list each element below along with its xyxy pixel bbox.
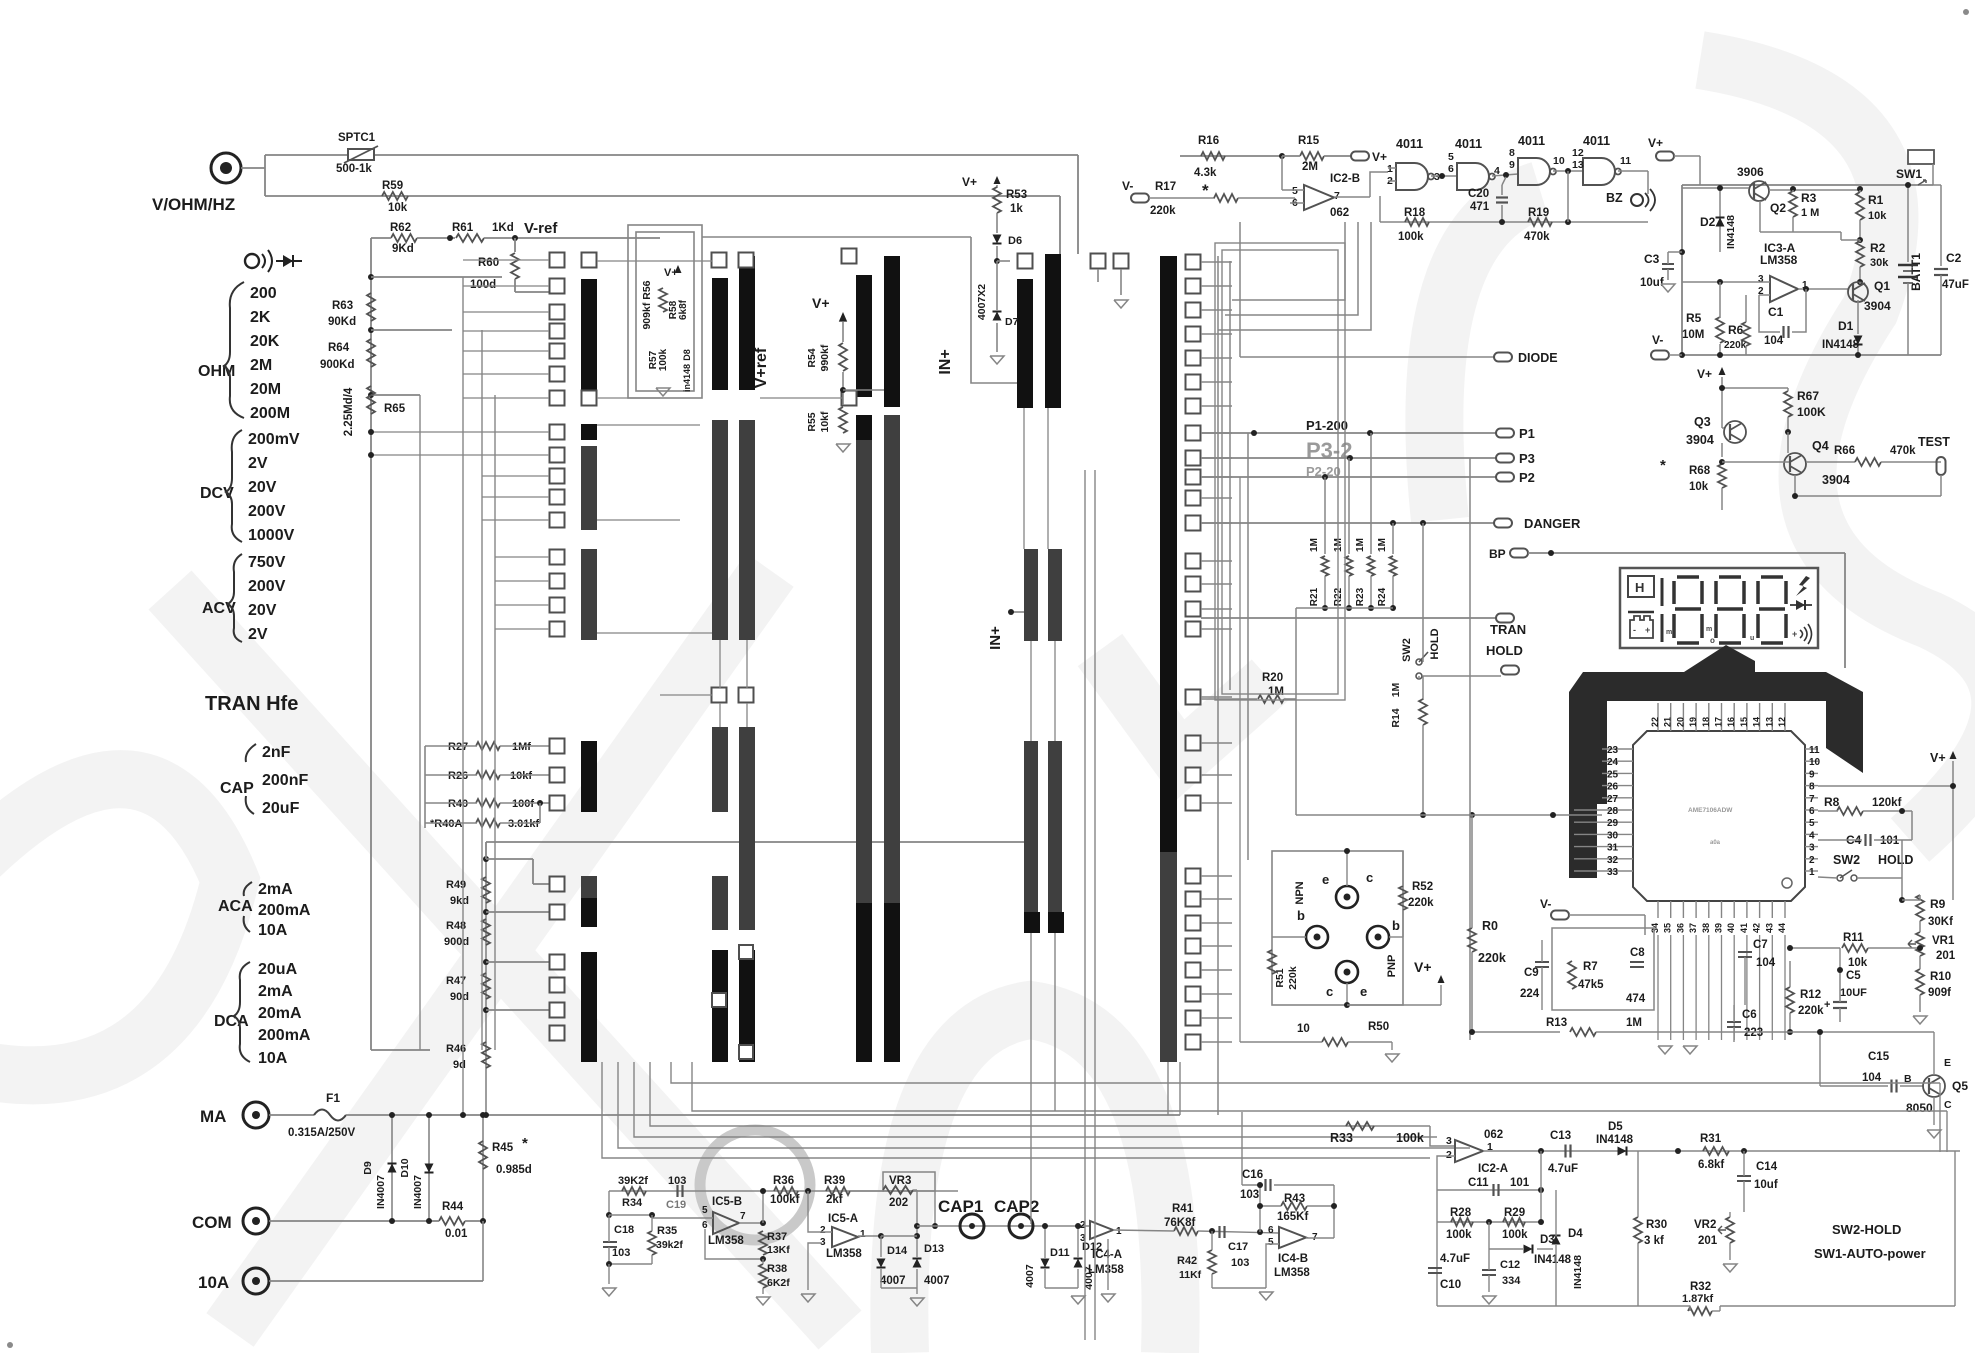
svg-text:b: b [1297, 908, 1305, 923]
svg-text:2mA: 2mA [258, 881, 293, 898]
svg-text:201: 201 [1936, 950, 1956, 962]
svg-text:30: 30 [1607, 830, 1619, 841]
svg-text:2: 2 [820, 1225, 826, 1236]
svg-text:V+: V+ [1414, 959, 1432, 975]
svg-text:R45: R45 [492, 1142, 514, 1154]
svg-text:100k: 100k [1502, 1229, 1528, 1241]
svg-text:R41: R41 [1172, 1203, 1194, 1215]
svg-text:D6: D6 [1008, 235, 1022, 247]
svg-text:D8: D8 [682, 349, 692, 361]
svg-text:6: 6 [1809, 806, 1815, 817]
svg-text:R59: R59 [382, 180, 403, 192]
svg-text:20V: 20V [248, 479, 277, 496]
svg-text:10kf: 10kf [819, 411, 831, 433]
svg-text:103: 103 [1231, 1257, 1249, 1269]
svg-text:20K: 20K [250, 333, 280, 350]
svg-text:IN4148: IN4148 [1725, 215, 1737, 249]
svg-text:R66: R66 [1834, 445, 1855, 457]
svg-text:20uF: 20uF [262, 800, 300, 817]
svg-text:LM358: LM358 [1274, 1267, 1310, 1279]
svg-text:6K2f: 6K2f [767, 1277, 790, 1289]
svg-text:IN4007: IN4007 [412, 1175, 424, 1209]
svg-text:V-: V- [1122, 179, 1133, 193]
svg-text:11: 11 [1620, 155, 1631, 167]
svg-text:7: 7 [740, 1211, 746, 1222]
svg-text:R31: R31 [1700, 1133, 1722, 1145]
svg-text:4011: 4011 [1455, 137, 1482, 151]
svg-text:C17: C17 [1228, 1241, 1248, 1253]
svg-text:23: 23 [1607, 745, 1619, 756]
svg-text:ACA: ACA [218, 898, 253, 915]
svg-text:R13: R13 [1546, 1017, 1567, 1029]
svg-text:VR3: VR3 [889, 1175, 911, 1187]
svg-text:R17: R17 [1155, 181, 1176, 193]
svg-text:*: * [1660, 457, 1666, 474]
svg-text:2K: 2K [250, 309, 271, 326]
svg-text:VR1: VR1 [1932, 935, 1955, 947]
svg-text:500-1k: 500-1k [336, 163, 372, 175]
svg-text:R24: R24 [1377, 587, 1388, 606]
svg-text:R11: R11 [1843, 932, 1864, 944]
svg-text:42: 42 [1752, 923, 1762, 933]
svg-text:90d: 90d [450, 991, 469, 1003]
svg-text:6: 6 [1268, 1225, 1274, 1236]
svg-text:38: 38 [1701, 923, 1711, 933]
svg-text:+: + [1824, 999, 1830, 1011]
svg-text:m: m [1706, 626, 1712, 633]
svg-text:R30: R30 [1646, 1219, 1667, 1231]
svg-text:200V: 200V [248, 503, 286, 520]
svg-text:V-: V- [1652, 333, 1663, 347]
svg-text:76K8f: 76K8f [1164, 1217, 1195, 1229]
svg-text:*: * [1202, 181, 1209, 200]
svg-text:R55: R55 [806, 412, 818, 431]
svg-text:17: 17 [1714, 717, 1724, 727]
svg-text:b: b [1392, 918, 1400, 933]
svg-text:SW2: SW2 [1401, 638, 1413, 662]
svg-text:m: m [1666, 629, 1672, 636]
svg-text:IN4148: IN4148 [1596, 1134, 1634, 1146]
svg-text:DIODE: DIODE [1518, 351, 1558, 365]
svg-text:IN+: IN+ [937, 349, 954, 374]
svg-text:43: 43 [1764, 923, 1774, 933]
svg-text:10UF: 10UF [1840, 987, 1867, 999]
svg-text:e: e [1360, 984, 1367, 999]
svg-text:c: c [1366, 870, 1373, 885]
svg-text:C3: C3 [1644, 252, 1660, 266]
svg-text:R36: R36 [773, 1175, 794, 1187]
svg-text:R23: R23 [1355, 587, 1366, 606]
svg-text:Q3: Q3 [1694, 415, 1711, 429]
svg-text:Q4: Q4 [1812, 439, 1829, 453]
svg-text:104: 104 [1764, 335, 1784, 347]
svg-text:in4148: in4148 [682, 364, 692, 392]
svg-text:TRAN: TRAN [1490, 622, 1526, 637]
svg-text:30k: 30k [1870, 257, 1889, 269]
svg-text:0.985d: 0.985d [496, 1164, 532, 1176]
svg-text:V-ref: V-ref [524, 220, 558, 237]
svg-text:c: c [1326, 984, 1333, 999]
svg-text:21: 21 [1663, 717, 1673, 727]
svg-text:9: 9 [1509, 159, 1515, 171]
svg-text:SW2-HOLD: SW2-HOLD [1832, 1222, 1901, 1237]
svg-text:3906: 3906 [1737, 165, 1764, 179]
svg-text:25: 25 [1607, 769, 1619, 780]
svg-text:u: u [1750, 635, 1754, 642]
svg-text:1M: 1M [1355, 538, 1366, 552]
svg-text:NPN: NPN [1294, 881, 1306, 904]
svg-text:C2: C2 [1946, 251, 1962, 265]
svg-text:6.8kf: 6.8kf [1698, 1159, 1724, 1171]
svg-text:R64: R64 [328, 342, 350, 354]
svg-text:D13: D13 [924, 1243, 944, 1255]
svg-text:H: H [1635, 580, 1644, 595]
svg-text:9d: 9d [453, 1059, 466, 1071]
svg-text:220k: 220k [1150, 205, 1176, 217]
svg-text:10A: 10A [258, 1050, 288, 1067]
svg-text:-: - [1633, 625, 1636, 635]
svg-text:990kf: 990kf [819, 344, 831, 371]
svg-text:C9: C9 [1524, 967, 1539, 979]
svg-text:R63: R63 [332, 300, 353, 312]
svg-text:200mA: 200mA [258, 902, 311, 919]
svg-text:100K: 100K [1797, 405, 1826, 419]
svg-text:2: 2 [1809, 855, 1815, 866]
svg-text:R44: R44 [442, 1201, 464, 1213]
svg-text:3: 3 [1758, 274, 1764, 285]
svg-text:16: 16 [1726, 717, 1736, 727]
svg-text:CAP2: CAP2 [994, 1197, 1039, 1216]
svg-text:18: 18 [1701, 717, 1711, 727]
svg-text:3: 3 [1809, 843, 1815, 854]
svg-text:HOLD: HOLD [1486, 643, 1523, 658]
svg-text:a0a: a0a [1710, 840, 1721, 846]
svg-text:C15: C15 [1868, 1051, 1890, 1063]
svg-text:IC2-B: IC2-B [1330, 173, 1360, 185]
svg-text:2: 2 [1446, 1149, 1452, 1161]
svg-text:900Kd: 900Kd [320, 359, 355, 371]
svg-text:1: 1 [1809, 867, 1815, 878]
svg-text:100k: 100k [1398, 231, 1424, 243]
svg-text:C11: C11 [1468, 1177, 1489, 1189]
svg-text:220k: 220k [1478, 951, 1506, 965]
svg-text:D9: D9 [362, 1161, 374, 1175]
svg-text:3: 3 [1446, 1135, 1452, 1147]
svg-text:P3: P3 [1519, 451, 1535, 466]
svg-text:3904: 3904 [1686, 433, 1714, 447]
svg-text:MA: MA [200, 1107, 226, 1126]
svg-text:R68: R68 [1689, 465, 1711, 477]
svg-text:220k: 220k [1724, 340, 1747, 351]
svg-text:o: o [1710, 636, 1715, 645]
svg-text:2nF: 2nF [262, 744, 291, 761]
svg-text:R29: R29 [1504, 1207, 1525, 1219]
svg-text:R8: R8 [1824, 795, 1840, 809]
svg-text:LM358: LM358 [1760, 253, 1798, 267]
svg-text:C1: C1 [1768, 305, 1784, 319]
svg-text:SW2: SW2 [1833, 853, 1860, 867]
svg-text:22: 22 [1650, 717, 1660, 727]
svg-text:41: 41 [1739, 923, 1749, 933]
svg-text:3: 3 [1434, 171, 1440, 183]
svg-text:220k: 220k [1287, 966, 1299, 990]
svg-text:39K2f: 39K2f [618, 1175, 648, 1187]
svg-text:11Kf: 11Kf [1179, 1269, 1202, 1281]
svg-text:39k2f: 39k2f [656, 1239, 683, 1251]
svg-text:10: 10 [1553, 155, 1565, 167]
svg-text:12: 12 [1572, 147, 1584, 159]
svg-text:223: 223 [1744, 1027, 1763, 1039]
svg-text:9kd: 9kd [450, 895, 469, 907]
svg-text:36: 36 [1675, 923, 1685, 933]
svg-text:R15: R15 [1298, 135, 1320, 147]
svg-text:C20: C20 [1468, 188, 1489, 200]
svg-text:5: 5 [1448, 151, 1454, 163]
svg-text:R52: R52 [1412, 881, 1433, 893]
svg-text:4007: 4007 [924, 1275, 950, 1287]
svg-text:10k: 10k [388, 202, 408, 214]
svg-text:10A: 10A [198, 1273, 229, 1292]
svg-text:P1: P1 [1519, 426, 1535, 441]
svg-text:29: 29 [1607, 818, 1619, 829]
svg-text:103: 103 [1240, 1189, 1259, 1201]
svg-text:33: 33 [1607, 867, 1619, 878]
svg-text:100k: 100k [1396, 1131, 1424, 1145]
svg-text:HOLD: HOLD [1429, 628, 1441, 659]
svg-text:R35: R35 [657, 1225, 677, 1237]
svg-text:R1: R1 [1868, 193, 1884, 207]
svg-text:1M: 1M [1390, 682, 1402, 697]
svg-text:10k: 10k [1848, 957, 1868, 969]
svg-text:R3: R3 [1801, 191, 1817, 205]
svg-text:103: 103 [612, 1247, 630, 1259]
svg-text:20V: 20V [248, 602, 277, 619]
svg-text:5: 5 [1809, 818, 1815, 829]
svg-text:200V: 200V [248, 578, 286, 595]
svg-text:V+: V+ [1372, 150, 1387, 164]
svg-text:1: 1 [1116, 1226, 1122, 1237]
svg-text:R2: R2 [1870, 241, 1886, 255]
svg-text:IC4-B: IC4-B [1278, 1253, 1308, 1265]
svg-text:P2: P2 [1519, 470, 1535, 485]
svg-text:470k: 470k [1524, 231, 1550, 243]
svg-text:20uA: 20uA [258, 961, 298, 978]
svg-text:104: 104 [1862, 1072, 1882, 1084]
svg-text:LM358: LM358 [708, 1235, 744, 1247]
svg-text:35: 35 [1663, 923, 1673, 933]
svg-text:C10: C10 [1440, 1279, 1461, 1291]
svg-text:C: C [1944, 1099, 1952, 1111]
svg-text:27: 27 [1607, 794, 1619, 805]
svg-text:24: 24 [1607, 757, 1619, 768]
svg-text:R60: R60 [478, 257, 499, 269]
svg-text:Q2: Q2 [1770, 201, 1786, 215]
svg-text:202: 202 [889, 1197, 908, 1209]
svg-text:R9: R9 [1930, 897, 1946, 911]
svg-text:4011: 4011 [1396, 137, 1423, 151]
svg-text:8050: 8050 [1906, 1101, 1933, 1115]
svg-text:D10: D10 [399, 1158, 411, 1177]
svg-text:D14: D14 [887, 1245, 908, 1257]
svg-text:SW1-AUTO-power: SW1-AUTO-power [1814, 1246, 1926, 1261]
svg-text:IN4148: IN4148 [1534, 1254, 1572, 1266]
svg-text:D11: D11 [1050, 1247, 1070, 1259]
svg-text:R14: R14 [1390, 708, 1402, 727]
svg-text:*R40A: *R40A [430, 818, 462, 830]
svg-text:R39: R39 [824, 1175, 845, 1187]
svg-text:BP: BP [1489, 547, 1506, 561]
svg-text:10: 10 [1297, 1023, 1310, 1035]
svg-text:224: 224 [1520, 988, 1540, 1000]
svg-text:2.25Md/4: 2.25Md/4 [343, 387, 355, 436]
svg-text:SW1: SW1 [1896, 167, 1922, 181]
svg-text:SPTC1: SPTC1 [338, 132, 376, 144]
svg-text:100kf: 100kf [770, 1194, 800, 1206]
svg-text:10k: 10k [1689, 481, 1709, 493]
svg-text:100k: 100k [1446, 1229, 1472, 1241]
svg-text:LM358: LM358 [1088, 1264, 1124, 1276]
svg-text:4007: 4007 [1024, 1264, 1036, 1288]
svg-text:30Kf: 30Kf [1928, 916, 1953, 928]
svg-text:26: 26 [1607, 782, 1619, 793]
svg-text:120kf: 120kf [1872, 797, 1902, 809]
svg-text:6: 6 [1448, 163, 1454, 175]
svg-text:4007: 4007 [880, 1275, 906, 1287]
svg-text:8: 8 [1809, 782, 1815, 793]
svg-text:C8: C8 [1630, 947, 1645, 959]
svg-text:TEST: TEST [1918, 435, 1950, 449]
svg-text:334: 334 [1502, 1275, 1521, 1287]
svg-text:44: 44 [1777, 923, 1787, 933]
svg-text:1000V: 1000V [248, 527, 295, 544]
svg-text:10M: 10M [1682, 329, 1704, 341]
svg-text:2mA: 2mA [258, 983, 293, 1000]
svg-text:1k: 1k [1010, 203, 1023, 215]
svg-text:R26: R26 [448, 770, 468, 782]
svg-text:750V: 750V [248, 554, 286, 571]
svg-text:F1: F1 [326, 1091, 340, 1105]
svg-text:10uf: 10uf [1754, 1179, 1778, 1191]
svg-text:R42: R42 [1177, 1255, 1197, 1267]
svg-text:474: 474 [1626, 993, 1646, 1005]
svg-text:7: 7 [1334, 190, 1340, 202]
svg-text:10: 10 [1809, 757, 1821, 768]
svg-text:200mV: 200mV [248, 431, 300, 448]
svg-text:32: 32 [1607, 855, 1619, 866]
svg-text:20mA: 20mA [258, 1005, 302, 1022]
svg-text:3 kf: 3 kf [1644, 1235, 1664, 1247]
svg-text:12: 12 [1777, 717, 1787, 727]
svg-text:BZ: BZ [1606, 191, 1623, 205]
svg-text:909f: 909f [1928, 987, 1951, 999]
svg-text:C13: C13 [1550, 1130, 1571, 1142]
svg-text:AME7106ADW: AME7106ADW [1688, 807, 1733, 814]
svg-text:DANGER: DANGER [1524, 516, 1581, 531]
svg-text:1: 1 [1387, 163, 1393, 175]
svg-text:104: 104 [1756, 957, 1776, 969]
svg-text:R61: R61 [452, 222, 474, 234]
svg-text:220k: 220k [1798, 1005, 1824, 1017]
svg-text:R33: R33 [1330, 1131, 1353, 1145]
svg-text:40: 40 [1726, 923, 1736, 933]
svg-text:7: 7 [1809, 794, 1815, 805]
svg-text:C19: C19 [666, 1199, 686, 1211]
svg-text:D5: D5 [1608, 1121, 1623, 1133]
svg-text:V+ref: V+ref [753, 347, 770, 388]
svg-text:CAP1: CAP1 [938, 1197, 983, 1216]
svg-text:13: 13 [1764, 717, 1774, 727]
svg-text:C6: C6 [1742, 1009, 1757, 1021]
svg-text:90Kd: 90Kd [328, 316, 356, 328]
svg-text:C18: C18 [614, 1224, 634, 1236]
svg-text:R21: R21 [1309, 587, 1320, 606]
svg-text:R34: R34 [622, 1197, 643, 1209]
svg-text:IN4148: IN4148 [1822, 339, 1860, 351]
svg-text:5: 5 [1268, 1237, 1274, 1248]
svg-text:R5: R5 [1686, 311, 1702, 325]
svg-text:R20: R20 [1262, 672, 1283, 684]
svg-text:100k: 100k [658, 348, 669, 371]
svg-text:V+: V+ [1648, 136, 1663, 150]
svg-text:200nF: 200nF [262, 772, 308, 789]
svg-text:900d: 900d [444, 936, 469, 948]
svg-text:5: 5 [702, 1205, 708, 1216]
svg-text:*: * [522, 1135, 528, 1152]
svg-text:D7: D7 [1005, 316, 1019, 328]
svg-text:101: 101 [1510, 1177, 1530, 1189]
svg-text:R40: R40 [448, 798, 468, 810]
svg-text:R10: R10 [1930, 971, 1951, 983]
svg-text:4.7uF: 4.7uF [1440, 1253, 1470, 1265]
svg-text:8: 8 [1509, 147, 1515, 159]
svg-text:471: 471 [1470, 201, 1490, 213]
svg-text:D1: D1 [1838, 319, 1854, 333]
svg-text:1M: 1M [1309, 538, 1320, 552]
svg-text:15: 15 [1739, 717, 1749, 727]
svg-text:R16: R16 [1198, 135, 1219, 147]
svg-text:HOLD: HOLD [1878, 853, 1913, 867]
svg-text:200M: 200M [250, 405, 290, 422]
svg-text:IN4148: IN4148 [1572, 1255, 1584, 1289]
svg-text:10A: 10A [258, 922, 288, 939]
svg-text:0.01: 0.01 [445, 1228, 468, 1240]
svg-text:+: + [1645, 625, 1650, 635]
svg-text:V+: V+ [962, 175, 977, 189]
svg-text:R54: R54 [806, 348, 818, 367]
svg-text:2V: 2V [248, 455, 268, 472]
svg-text:100f: 100f [512, 798, 534, 810]
svg-text:11: 11 [1809, 745, 1820, 756]
svg-text:1M: 1M [1626, 1017, 1642, 1029]
svg-text:IN+: IN+ [987, 626, 1004, 650]
svg-text:CAP: CAP [220, 780, 254, 797]
svg-text:Q5: Q5 [1952, 1079, 1968, 1093]
svg-text:13Kf: 13Kf [767, 1244, 790, 1256]
svg-text:IC5-A: IC5-A [828, 1213, 858, 1225]
svg-text:2V: 2V [248, 626, 268, 643]
svg-text:C16: C16 [1242, 1169, 1263, 1181]
svg-text:R67: R67 [1797, 389, 1819, 403]
svg-text:V+: V+ [1697, 367, 1712, 381]
svg-text:200: 200 [250, 285, 277, 302]
svg-text:1Kd: 1Kd [492, 222, 514, 234]
svg-text:IC2-A: IC2-A [1478, 1163, 1508, 1175]
svg-text:200mA: 200mA [258, 1027, 311, 1044]
svg-text:5: 5 [1292, 185, 1298, 197]
svg-text:R6: R6 [1728, 323, 1744, 337]
svg-text:BATT1: BATT1 [1909, 253, 1923, 291]
svg-text:1.87kf: 1.87kf [1682, 1293, 1714, 1305]
